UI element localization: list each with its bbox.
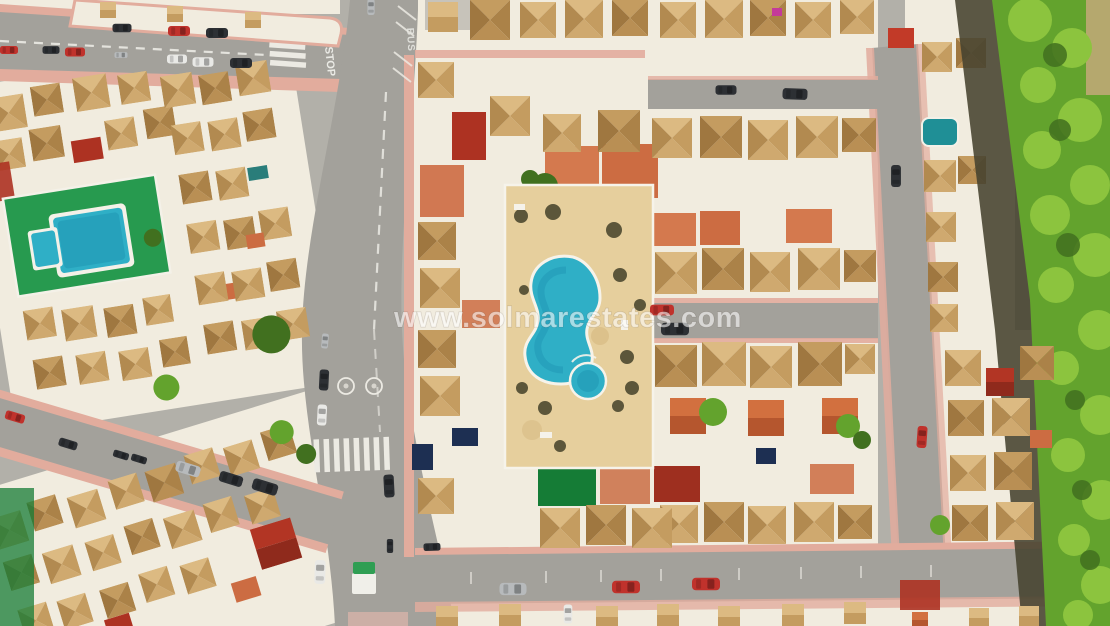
tree	[699, 398, 727, 426]
red-awning	[888, 28, 914, 48]
garbage-truck	[352, 562, 376, 594]
aerial-scene: STOP BUS	[0, 0, 1110, 626]
hedge-strip	[0, 488, 34, 626]
car	[113, 24, 132, 33]
bus-road-marking: BUS	[404, 28, 416, 53]
bottom-street	[415, 548, 1110, 604]
salmon-patio	[600, 468, 650, 504]
red-roof	[986, 368, 1014, 396]
magenta-object	[772, 8, 782, 16]
teal-pool	[922, 118, 958, 146]
green-turf-patio	[538, 468, 596, 506]
car	[168, 26, 190, 36]
watermark-text: www.solmarestates.com	[393, 302, 742, 334]
solar-panels	[756, 448, 776, 464]
red-roof	[452, 112, 486, 160]
dark-red-patio	[654, 466, 700, 502]
aerial-photo: STOP BUS	[0, 0, 1110, 626]
red-roof	[71, 137, 104, 163]
solar-panels	[412, 444, 433, 470]
solar-panels	[452, 428, 478, 446]
inner-lane-north	[648, 79, 878, 109]
